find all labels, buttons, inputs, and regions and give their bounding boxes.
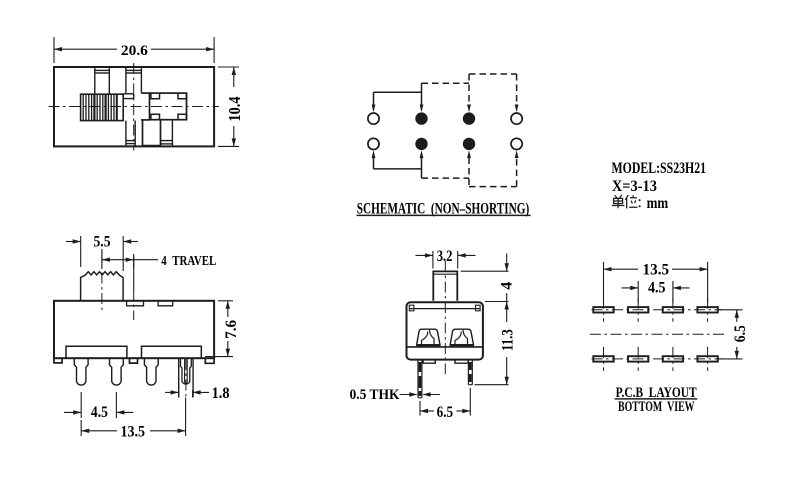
svg-text:13.5: 13.5: [643, 261, 670, 278]
svg-text:4.5: 4.5: [91, 404, 108, 421]
svg-text:6.5: 6.5: [437, 404, 454, 421]
svg-text:0.5 THK: 0.5 THK: [350, 387, 401, 403]
svg-text:mm: mm: [647, 195, 669, 212]
svg-text:13.5: 13.5: [121, 424, 146, 441]
svg-text:20.6: 20.6: [121, 43, 149, 59]
svg-text:10.4: 10.4: [225, 97, 244, 122]
svg-text:6.5: 6.5: [732, 325, 749, 342]
svg-text:11.3: 11.3: [499, 329, 516, 351]
svg-text:1.8: 1.8: [212, 385, 230, 402]
svg-text:BOTTOM VIEW: BOTTOM VIEW: [618, 399, 695, 415]
svg-text:5.5: 5.5: [94, 233, 111, 250]
svg-text:MODEL:SS23H21: MODEL:SS23H21: [612, 160, 707, 177]
svg-text:3.2: 3.2: [437, 248, 453, 265]
svg-text:4 TRAVEL: 4 TRAVEL: [161, 253, 216, 268]
svg-text:7.6: 7.6: [223, 320, 240, 339]
svg-text:X=3-13: X=3-13: [612, 178, 657, 195]
svg-text:4.5: 4.5: [648, 280, 666, 297]
svg-text:4: 4: [498, 282, 515, 290]
